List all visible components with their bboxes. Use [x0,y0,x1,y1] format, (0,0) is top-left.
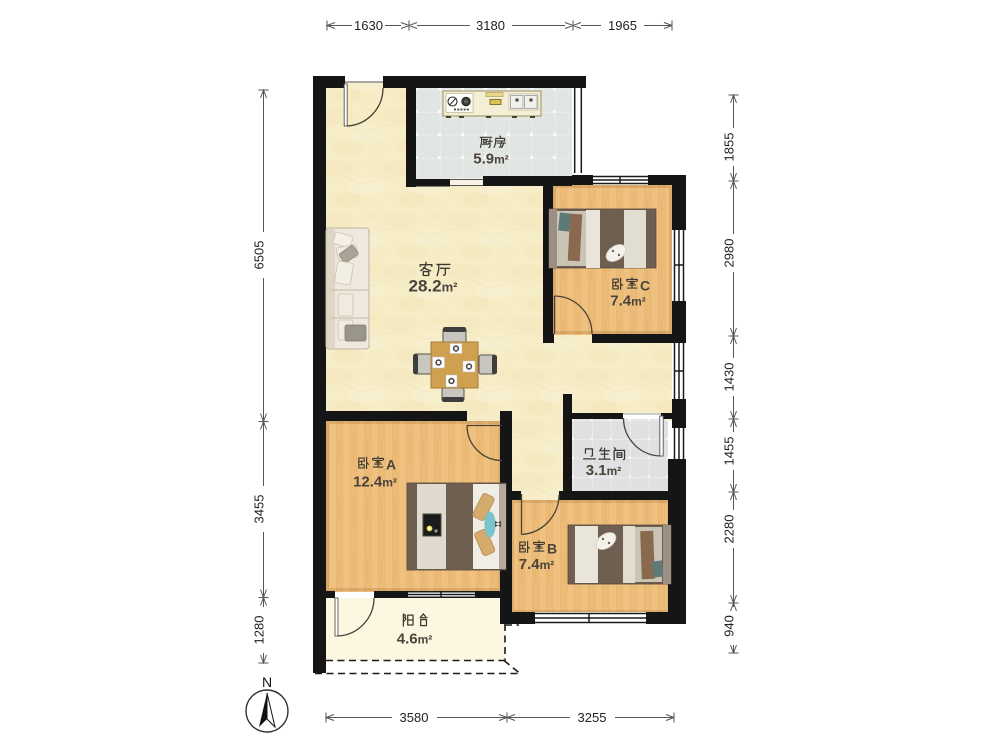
svg-text:A: A [386,457,396,473]
svg-text:N: N [262,674,272,690]
svg-text:1855: 1855 [722,133,737,162]
svg-text:2280: 2280 [722,515,737,544]
svg-text:B: B [547,541,557,557]
svg-text:5.9m²: 5.9m² [473,151,509,168]
svg-text:2980: 2980 [722,239,737,268]
svg-text:12.4m²: 12.4m² [353,474,397,491]
svg-text:3.1m²: 3.1m² [586,462,622,479]
svg-text:1965: 1965 [608,18,637,33]
svg-text:6505: 6505 [252,241,267,270]
svg-text:4.6m²: 4.6m² [397,631,433,648]
svg-text:1430: 1430 [722,363,737,392]
svg-text:28.2m²: 28.2m² [409,277,459,296]
svg-text:3180: 3180 [476,18,505,33]
svg-text:1630: 1630 [354,18,383,33]
svg-text:1455: 1455 [722,437,737,466]
svg-text:3455: 3455 [252,495,267,524]
svg-text:7.4m²: 7.4m² [519,556,555,573]
svg-text:C: C [640,278,650,294]
svg-text:1280: 1280 [252,616,267,645]
svg-text:940: 940 [722,615,737,637]
svg-text:7.4m²: 7.4m² [610,293,646,310]
svg-text:3580: 3580 [400,710,429,725]
svg-text:3255: 3255 [578,710,607,725]
